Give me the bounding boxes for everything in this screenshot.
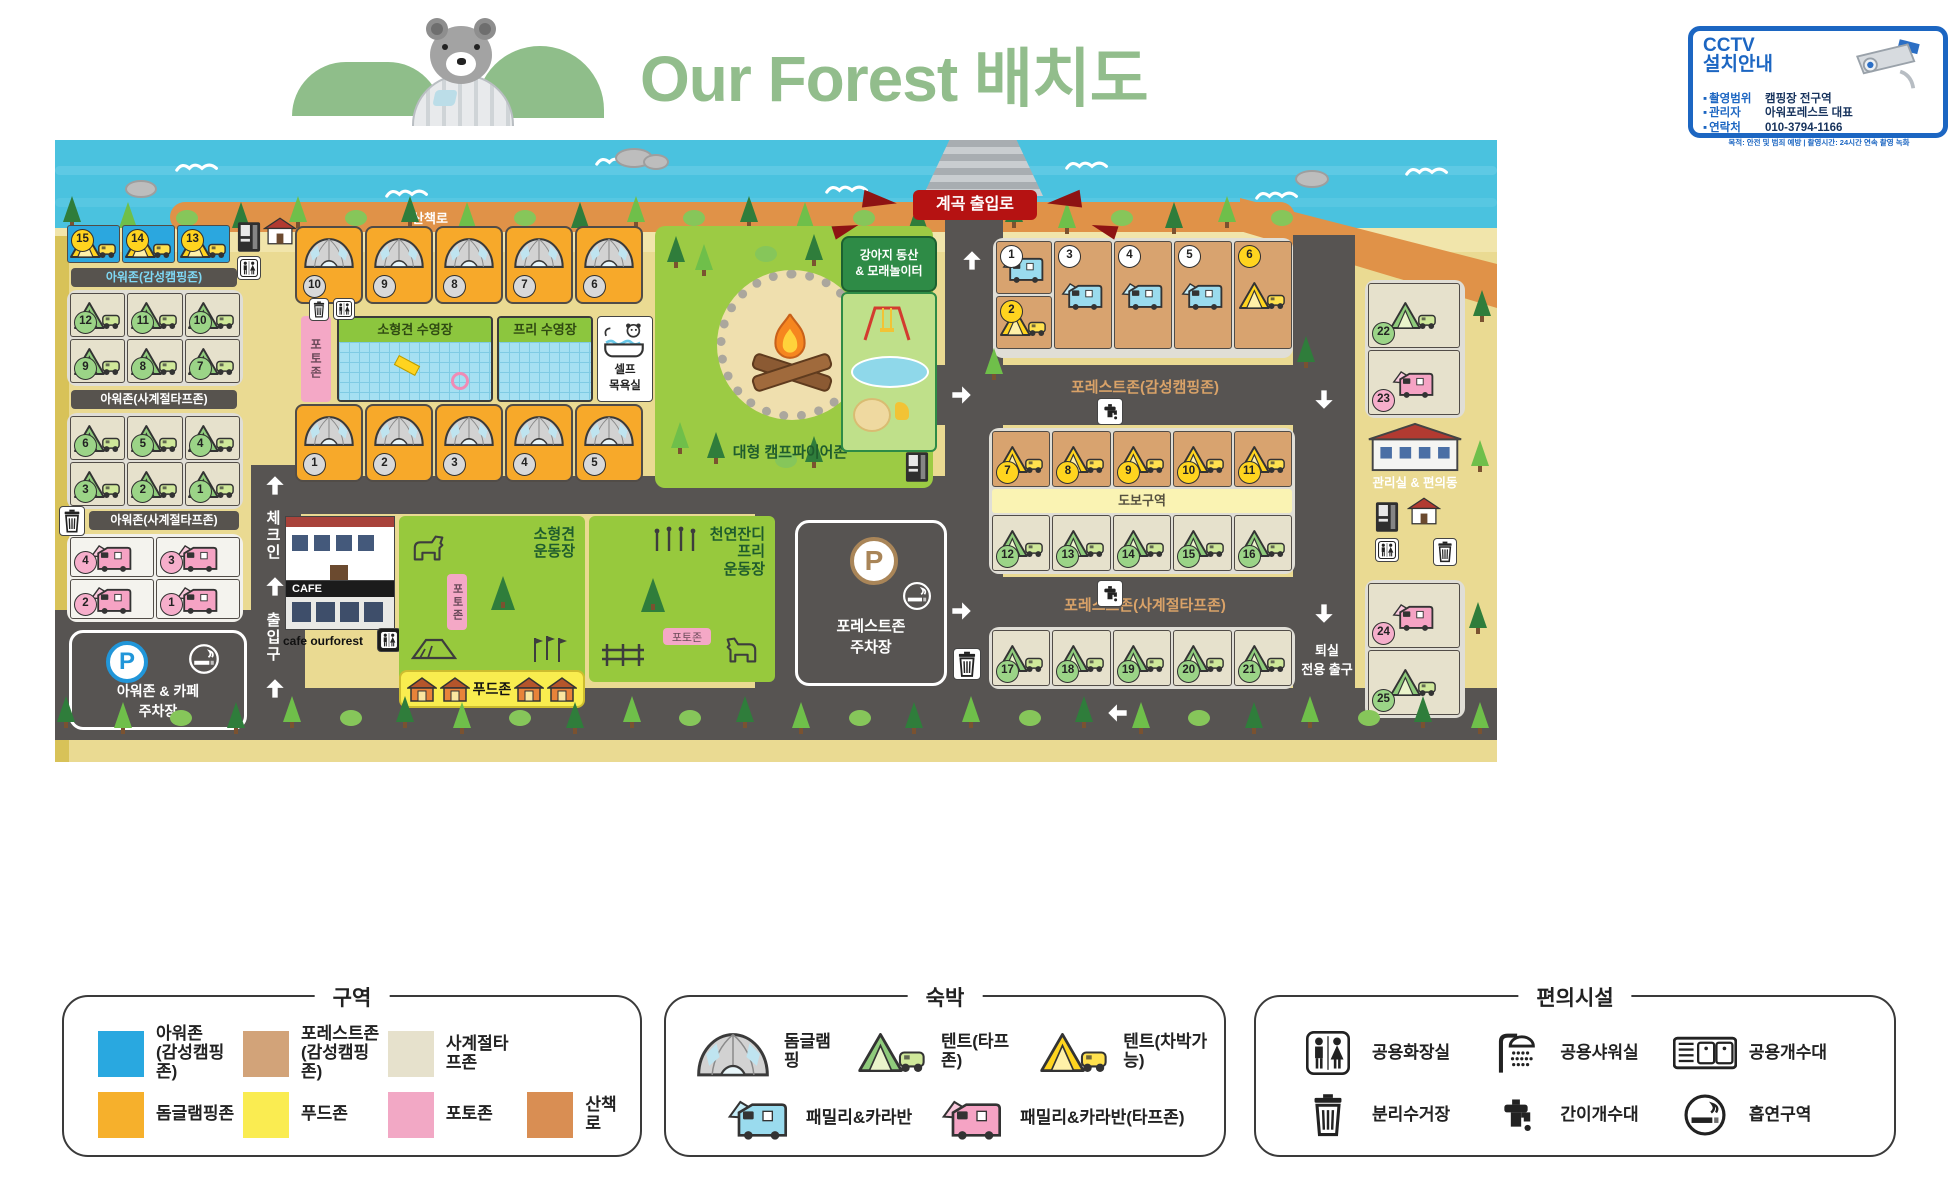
ourforest-logo xyxy=(292,16,632,124)
tree-icon xyxy=(57,696,75,722)
site-number: 10 xyxy=(189,311,212,334)
site-number: 19 xyxy=(1117,660,1140,683)
tree-icon xyxy=(1075,696,1093,722)
site-14: 14 xyxy=(1113,515,1171,571)
zone-label: 포레스트존 (감성캠핑존) xyxy=(301,1025,380,1081)
site-number: 6 xyxy=(583,275,606,298)
tree-icon xyxy=(683,210,705,226)
trash-icon xyxy=(309,298,329,321)
tree-icon xyxy=(176,210,198,226)
forest-parking-area: P 포레스트존 주차장 xyxy=(795,520,947,686)
toy-horse xyxy=(895,402,909,420)
legend-facilities-title: 편의시설 xyxy=(1518,982,1631,1012)
site-10: 10 xyxy=(1173,431,1231,487)
east-block-top: 2223 xyxy=(1365,280,1465,418)
faucet-icon xyxy=(1097,580,1123,607)
forest-parking-label: 포레스트존 주차장 xyxy=(798,615,944,657)
site-18: 18 xyxy=(1052,630,1110,686)
lodging-label: 텐트(타프존) xyxy=(941,1033,1017,1070)
tree-icon xyxy=(623,696,641,722)
site-number: 10 xyxy=(303,275,326,298)
forest-zone-glamping-label: 포레스트존(감성캠핑존) xyxy=(1015,376,1275,397)
puppy-hill-sign: 강아지 동산 & 모래놀이터 xyxy=(841,236,937,292)
our-tarp-sites-b: 654321 xyxy=(70,416,240,506)
legend-facility-item: 흡연구역 xyxy=(1673,1093,1878,1137)
self-bath-room: 셀프 목욕실 xyxy=(597,316,653,402)
poles-icon xyxy=(651,526,697,552)
tree-icon xyxy=(1414,696,1432,722)
wave-icon xyxy=(175,160,229,173)
legend-facility-item: 간이개수대 xyxy=(1484,1093,1662,1137)
exit-only-label: 퇴실 전용 출구 xyxy=(1297,640,1357,678)
tree-icon xyxy=(1111,210,1133,226)
site-number: 10 xyxy=(1177,461,1200,484)
tree-icon xyxy=(679,710,701,726)
legend-facilities: 편의시설 공용화장실공용샤워실공용개수대분리수거장간이개수대흡연구역 xyxy=(1254,995,1896,1157)
cctv-footnote: 목적: 안전 및 범죄 예방 | 촬영시간: 24시간 연속 촬영 녹화 xyxy=(1703,137,1935,148)
cctv-row: 연락처010-3794-1166 xyxy=(1703,121,1935,135)
down-arrow-icon xyxy=(1311,386,1337,412)
site-number: 9 xyxy=(1117,461,1140,484)
caravan-blue-icon xyxy=(1060,279,1106,311)
valley-gate-badge: 계곡 출입로 xyxy=(913,190,1037,220)
tree-icon xyxy=(905,702,923,728)
down-arrow-icon xyxy=(1311,600,1337,626)
rock xyxy=(1295,170,1329,188)
site-3: 3 xyxy=(435,404,503,482)
legend-facilities-grid: 공용화장실공용샤워실공용개수대분리수거장간이개수대흡연구역 xyxy=(1296,1023,1878,1145)
tent-car-green-icon xyxy=(1390,666,1438,699)
dome-icon xyxy=(302,412,356,447)
tree-icon xyxy=(1218,196,1236,222)
site-4: 4 xyxy=(505,404,573,482)
site-number: 13 xyxy=(1056,545,1079,568)
site-4: 4 xyxy=(185,416,240,460)
site-number: 23 xyxy=(1372,389,1395,412)
tree-icon xyxy=(571,202,589,228)
site-number: 12 xyxy=(74,311,97,334)
site-number: 6 xyxy=(1238,245,1261,268)
cafe-name-label: cafe ourforest xyxy=(283,634,375,648)
site-7: 7 xyxy=(185,339,240,383)
site-number: 15 xyxy=(1177,545,1200,568)
tree-icon xyxy=(63,196,81,222)
site-1: 1 xyxy=(156,579,240,619)
site-22: 22 xyxy=(1368,283,1460,348)
tree-icon xyxy=(1188,710,1210,726)
site-number: 11 xyxy=(1238,461,1261,484)
tree-icon xyxy=(114,702,132,728)
photo-zone-tag: 포토존 xyxy=(447,574,467,630)
tree-icon xyxy=(796,202,814,228)
dome-icon xyxy=(582,234,636,269)
our-tarp-sites-a: 121110987 xyxy=(70,293,240,383)
sink-icon xyxy=(1673,1035,1737,1071)
site-number: 14 xyxy=(126,229,149,252)
site-9: 9 xyxy=(365,226,433,304)
site-number: 18 xyxy=(1056,660,1079,683)
restroom-icon xyxy=(1296,1031,1360,1075)
restroom-icon xyxy=(1375,538,1399,562)
site-5: 5 xyxy=(575,404,643,482)
legend-facility-item: 분리수거장 xyxy=(1296,1093,1474,1137)
facility-label: 공용샤워실 xyxy=(1560,1044,1638,1063)
faucet-icon xyxy=(1097,398,1123,425)
forest-zone-tarp-label: 포레스트존(사계절타프존) xyxy=(1005,594,1285,615)
our-glamping-sites: 151413 xyxy=(67,225,230,263)
forest-tarp-sites-1: 1213141516 xyxy=(992,515,1292,571)
our-zone-glamping-bar: 아워존(감성캠핑존) xyxy=(71,268,237,287)
right-arrow-icon xyxy=(948,598,974,624)
site-number: 20 xyxy=(1177,660,1200,683)
caravan-blue-icon xyxy=(726,1095,793,1141)
tent-car-green-icon xyxy=(858,1028,928,1076)
site-number: 2 xyxy=(373,453,396,476)
zone-color-swatch xyxy=(527,1092,573,1138)
site-19: 19 xyxy=(1113,630,1171,686)
lodging-label: 텐트(차박가능) xyxy=(1123,1033,1214,1070)
site-5: 5 xyxy=(1174,241,1232,349)
legend-lodging-item: 텐트(차박가능) xyxy=(1039,1033,1214,1070)
site-2: 2 xyxy=(996,296,1052,349)
our-tarp-block-a: 121110987 xyxy=(67,290,243,386)
site-number: 3 xyxy=(74,480,97,503)
site-number: 4 xyxy=(189,434,212,457)
site-number: 16 xyxy=(1238,545,1261,568)
free-pool-label: 프리 수영장 xyxy=(499,318,591,342)
tree-icon xyxy=(1245,702,1263,728)
legend-zones: 구역 아워존 (감성캠핑존)포레스트존 (감성캠핑존)사계절타프존돔글램핑존푸드… xyxy=(62,995,642,1157)
site-number: 2 xyxy=(1000,300,1023,323)
small-dog-pool-label: 소형견 수영장 xyxy=(339,318,491,342)
legend-zone-item: 산책로 xyxy=(527,1092,626,1138)
restroom-icon xyxy=(333,298,355,320)
legend-zone-item: 사계절타프존 xyxy=(388,1031,519,1077)
photo-zone-tag: 포토존 xyxy=(663,628,711,645)
campground-map: 산책로 계곡 출입로 151413 아워존(감성캠핑존) 121110987 아… xyxy=(55,140,1497,762)
legend-lodging-item: 돔글램핑 xyxy=(694,1033,835,1070)
site-15: 15 xyxy=(67,225,120,263)
house-icon xyxy=(1407,496,1441,526)
site-number: 1 xyxy=(189,480,212,503)
site-number: 6 xyxy=(74,434,97,457)
site-number: 12 xyxy=(996,545,1019,568)
tree-icon xyxy=(170,710,192,726)
forest-rows-block-2: 1718192021 xyxy=(989,627,1295,689)
facility-label: 공용화장실 xyxy=(1372,1044,1450,1063)
legend-zone-item: 포토존 xyxy=(388,1092,519,1138)
site-14: 14 xyxy=(122,225,175,263)
site-2: 2 xyxy=(70,579,154,619)
legend-facility-item: 공용개수대 xyxy=(1673,1035,1878,1071)
cctv-rows: 촬영범위캠핑장 전구역관리자아워포레스트 대표연락처010-3794-1166 xyxy=(1703,92,1935,135)
site-6: 6 xyxy=(1234,241,1292,349)
lodging-label: 패밀리&카라반(타프존) xyxy=(1020,1109,1184,1128)
site-1: 1 xyxy=(185,462,240,506)
pool-water xyxy=(499,342,591,400)
site-1: 1 xyxy=(295,404,363,482)
forest-caravan-stack: 12 xyxy=(996,241,1052,355)
dome-icon xyxy=(694,1027,772,1078)
up-arrow-icon xyxy=(262,574,288,600)
site-3: 3 xyxy=(156,537,240,577)
forest-caravan-tall: 3456 xyxy=(1054,241,1292,355)
zone-label: 포토존 xyxy=(446,1105,493,1124)
dome-icon xyxy=(582,412,636,447)
legend-facility-item: 공용화장실 xyxy=(1296,1031,1474,1075)
small-dog-pool: 소형견 수영장 xyxy=(337,316,493,402)
site-number: 3 xyxy=(443,453,466,476)
dome-icon xyxy=(372,234,426,269)
site-number: 22 xyxy=(1372,322,1395,345)
site-8: 8 xyxy=(1052,431,1110,487)
site-9: 9 xyxy=(1113,431,1171,487)
site-5: 5 xyxy=(127,416,182,460)
tree-icon xyxy=(509,710,531,726)
site-9: 9 xyxy=(70,339,125,383)
cctv-row: 관리자아워포레스트 대표 xyxy=(1703,106,1935,120)
cctv-notice: CCTV 설치안내 촬영범위캠핑장 전구역관리자아워포레스트 대표연락처010-… xyxy=(1688,26,1948,138)
free-pool: 프리 수영장 xyxy=(497,316,593,402)
small-dog-field: 소형견 운동장 포토존 xyxy=(399,516,585,682)
site-13: 13 xyxy=(1052,515,1110,571)
admin-building-icon xyxy=(1367,422,1463,472)
restroom-icon xyxy=(237,256,261,280)
zone-color-swatch xyxy=(98,1031,144,1077)
site-number: 24 xyxy=(1372,622,1395,645)
tree-icon xyxy=(736,696,754,722)
house-icon xyxy=(263,216,297,246)
right-arrow-icon xyxy=(948,382,974,408)
dome-icon xyxy=(442,234,496,269)
site-number: 14 xyxy=(1117,545,1140,568)
caravan-blue-icon xyxy=(1180,279,1226,311)
site-23: 23 xyxy=(1368,350,1460,415)
legend-facility-item: 공용샤워실 xyxy=(1484,1031,1662,1075)
self-bath-label: 셀프 목욕실 xyxy=(598,361,652,393)
zone-color-swatch xyxy=(98,1092,144,1138)
site-number: 7 xyxy=(513,275,536,298)
tree-icon xyxy=(627,196,645,222)
site-7: 7 xyxy=(505,226,573,304)
faucet-icon xyxy=(1484,1093,1548,1137)
site-number: 3 xyxy=(1058,245,1081,268)
our-zone-tarp-bar-2: 아워존(사계절타프존) xyxy=(89,511,239,530)
site-number: 4 xyxy=(513,453,536,476)
puppy-hill-label: 강아지 동산 & 모래놀이터 xyxy=(855,248,922,279)
vending-machine-icon xyxy=(237,220,261,254)
restroom-icon xyxy=(377,628,401,652)
site-8: 8 xyxy=(127,339,182,383)
lodging-row: 패밀리&카라반패밀리&카라반(타프존) xyxy=(724,1089,1214,1147)
site-12: 12 xyxy=(992,515,1050,571)
zone-label: 아워존 (감성캠핑존) xyxy=(156,1025,235,1081)
tree-icon xyxy=(1019,710,1041,726)
tree-icon xyxy=(396,696,414,722)
site-3: 3 xyxy=(1054,241,1112,349)
legend-lodging-item: 텐트(타프존) xyxy=(857,1033,1017,1070)
site-3: 3 xyxy=(70,462,125,506)
site-number: 9 xyxy=(74,357,97,380)
cctv-title: CCTV 설치안내 xyxy=(1703,36,1773,92)
legend-lodging: 숙박 돔글램핑텐트(타프존)텐트(차박가능) 패밀리&카라반패밀리&카라반(타프… xyxy=(664,995,1226,1157)
caravan-pink-icon xyxy=(940,1095,1007,1141)
tree-icon xyxy=(1471,702,1489,728)
our-family-sites: 4321 xyxy=(70,537,240,619)
site-number: 7 xyxy=(996,461,1019,484)
trash-icon xyxy=(953,648,981,680)
tree-icon xyxy=(1165,202,1183,228)
tree-icon xyxy=(849,710,871,726)
cctv-row: 촬영범위캠핑장 전구역 xyxy=(1703,92,1935,106)
zone-label: 푸드존 xyxy=(301,1105,348,1124)
caravan-blue-icon xyxy=(1120,279,1166,311)
zone-color-swatch xyxy=(243,1031,289,1077)
facility-label: 분리수거장 xyxy=(1372,1106,1450,1125)
flame-icon xyxy=(768,312,812,362)
smoking-icon xyxy=(902,581,932,611)
flags-icon xyxy=(527,634,567,664)
swing-icon xyxy=(861,302,913,342)
our-tarp-block-b: 654321 xyxy=(67,413,243,509)
tree-icon xyxy=(340,710,362,726)
check-in-label: 체크인 xyxy=(262,500,283,570)
site-15: 15 xyxy=(1173,515,1231,571)
trash-icon xyxy=(1433,538,1457,566)
dog-icon xyxy=(721,634,759,666)
east-sites-top: 2223 xyxy=(1368,283,1462,415)
site-number: 4 xyxy=(1118,245,1141,268)
forest-caravan-block: 12 3456 xyxy=(993,238,1293,358)
shower-icon xyxy=(1484,1031,1548,1075)
tree-icon xyxy=(1132,702,1150,728)
site-number: 17 xyxy=(996,660,1019,683)
forest-tarp-sites-2: 1718192021 xyxy=(992,630,1292,686)
site-number: 21 xyxy=(1238,660,1261,683)
smoking-icon xyxy=(1673,1093,1737,1137)
photo-zone-strip: 포토존 xyxy=(301,316,331,402)
site-number: 5 xyxy=(583,453,606,476)
dog-icon xyxy=(411,532,449,564)
site-2: 2 xyxy=(365,404,433,482)
tent-car-yellow-icon xyxy=(1239,279,1287,312)
legend-zone-item: 포레스트존 (감성캠핑존) xyxy=(243,1025,380,1081)
site-number: 3 xyxy=(160,551,183,574)
site-number: 7 xyxy=(189,357,212,380)
forest-rows-block: 7891011 도보구역 1213141516 xyxy=(989,428,1295,574)
site-number: 8 xyxy=(443,275,466,298)
parking-icon: P xyxy=(106,641,148,683)
vending-machine-icon xyxy=(905,450,929,484)
tree-icon xyxy=(283,696,301,722)
site-17: 17 xyxy=(992,630,1050,686)
site-number: 1 xyxy=(1000,245,1023,268)
tree-icon xyxy=(566,702,584,728)
dog-bath-icon xyxy=(601,321,647,361)
agility-ramp-icon xyxy=(411,636,457,660)
legend-lodging-item: 패밀리&카라반(타프존) xyxy=(938,1102,1184,1134)
dome-sites-top: 109876 xyxy=(295,226,643,304)
site-7: 7 xyxy=(992,431,1050,487)
puppy-playground xyxy=(841,292,937,452)
tent-car-yellow-icon xyxy=(1040,1028,1110,1076)
site-8: 8 xyxy=(435,226,503,304)
site-10: 10 xyxy=(295,226,363,304)
tent-car-green-icon xyxy=(1390,299,1438,332)
entrance-label: 출입구 xyxy=(262,602,283,672)
site-number: 15 xyxy=(71,229,94,252)
tree-icon xyxy=(740,196,758,222)
rock xyxy=(643,154,669,170)
site-number: 5 xyxy=(1178,245,1201,268)
zone-color-swatch xyxy=(388,1092,434,1138)
lodging-label: 패밀리&카라반 xyxy=(806,1109,912,1128)
site-6: 6 xyxy=(70,416,125,460)
up-arrow-icon xyxy=(959,248,985,274)
site-4: 4 xyxy=(70,537,154,577)
pension-building xyxy=(285,516,395,582)
site-number: 1 xyxy=(303,453,326,476)
tree-icon xyxy=(1301,696,1319,722)
bear-icon xyxy=(430,26,492,84)
facility-label: 간이개수대 xyxy=(1560,1106,1638,1125)
site-1: 1 xyxy=(996,241,1052,294)
wave-icon xyxy=(1065,158,1119,171)
zone-label: 사계절타프존 xyxy=(446,1035,519,1072)
facility-label: 흡연구역 xyxy=(1749,1106,1812,1125)
tree-icon xyxy=(1271,210,1293,226)
site-2: 2 xyxy=(127,462,182,506)
wave-icon xyxy=(1405,164,1459,177)
tree-icon xyxy=(514,210,536,226)
sand-pit xyxy=(853,398,891,432)
site-13: 13 xyxy=(177,225,230,263)
dome-icon xyxy=(302,234,356,269)
page-title: Our Forest 배치도 xyxy=(640,28,1320,120)
tree-row xyxy=(57,696,1495,756)
pool-water xyxy=(339,342,491,400)
dome-icon xyxy=(442,412,496,447)
caravan-pink-icon xyxy=(1391,600,1437,632)
forest-glamping-sites: 7891011 xyxy=(992,431,1292,487)
site-number: 13 xyxy=(181,229,204,252)
zone-color-swatch xyxy=(243,1092,289,1138)
site-number: 2 xyxy=(74,593,97,616)
lodging-label: 돔글램핑 xyxy=(784,1033,835,1070)
up-arrow-icon xyxy=(262,473,288,499)
legend-zone-item: 아워존 (감성캠핑존) xyxy=(98,1025,235,1081)
smoking-icon xyxy=(188,643,220,675)
site-21: 21 xyxy=(1234,630,1292,686)
tree-icon xyxy=(227,702,245,728)
tree-icon xyxy=(401,196,419,222)
dome-sites-bottom: 12345 xyxy=(295,404,643,482)
small-dog-field-label: 소형견 운동장 xyxy=(534,526,575,561)
tree-icon xyxy=(962,696,980,722)
tree-icon xyxy=(453,702,471,728)
site-number: 4 xyxy=(74,551,97,574)
site-20: 20 xyxy=(1173,630,1231,686)
zone-color-swatch xyxy=(388,1031,434,1077)
free-field: 천연잔디 프리 운동장 포토존 xyxy=(589,516,775,682)
legend-zone-item: 돔글램핑존 xyxy=(98,1092,235,1138)
cctv-camera-icon xyxy=(1843,36,1935,92)
parking-icon: P xyxy=(850,537,898,585)
site-number: 1 xyxy=(160,593,183,616)
our-family-block: 4321 xyxy=(67,534,243,622)
zone-label: 산책로 xyxy=(585,1096,626,1133)
site-11: 11 xyxy=(127,293,182,337)
